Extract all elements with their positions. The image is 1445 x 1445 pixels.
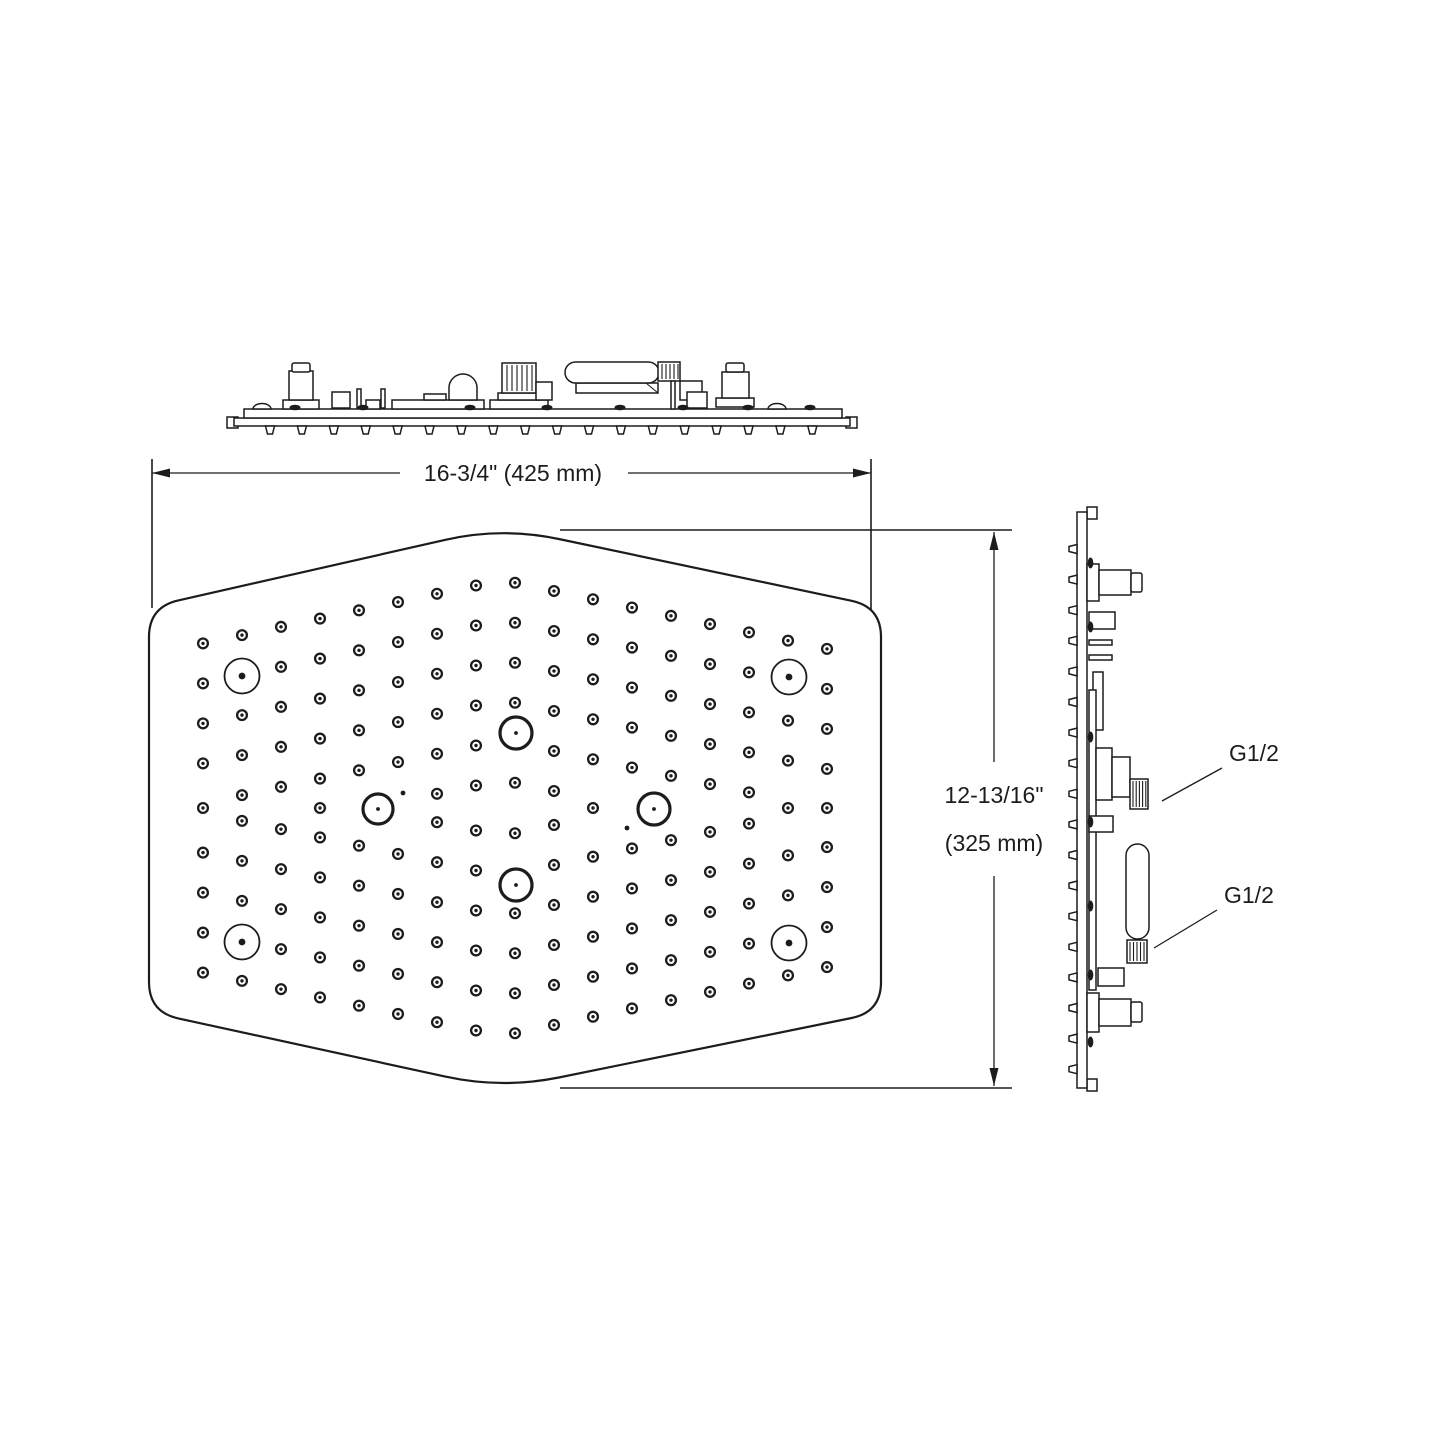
right-cylinder-cap [726, 363, 744, 372]
left-cylinder-flange [283, 400, 319, 409]
side-view-right [1069, 507, 1149, 1091]
plate-end-tab-top [1087, 507, 1097, 519]
small-block-5 [687, 392, 707, 408]
dome-component [449, 374, 477, 400]
nozzle-ticks-column [1069, 545, 1077, 1074]
g12-callout-upper: G1/2 [1162, 740, 1279, 801]
base-plate-deck [244, 409, 842, 418]
panel-outline [149, 533, 881, 1083]
top-cylinder-cap [1131, 573, 1142, 592]
g12-callout-lower: G1/2 [1154, 882, 1274, 948]
platform-step [424, 394, 446, 400]
top-cylinder-flange [1087, 564, 1099, 601]
left-cylinder-cap [292, 363, 310, 372]
arrowhead-left [152, 469, 170, 478]
inlet-body [1112, 757, 1130, 797]
capsule-housing-profile [1126, 844, 1149, 939]
pin-2 [381, 389, 385, 408]
arrowhead-down [990, 1068, 999, 1086]
leader-line-upper [1162, 768, 1222, 801]
height-dimension-label-line1: 12-13/16" [945, 782, 1044, 808]
capsule-housing [565, 362, 659, 383]
small-block-1 [332, 392, 350, 408]
small-block-3 [536, 382, 552, 400]
plan-view [149, 533, 881, 1083]
mount-bump-right [768, 404, 786, 409]
center-pedestal [490, 400, 548, 409]
threaded-inlet-2-top-view [658, 362, 680, 381]
profile-fin-2 [1089, 655, 1112, 660]
profile-fin-1 [1089, 640, 1112, 645]
profile-block-3 [1098, 968, 1124, 986]
g12-label-lower: G1/2 [1224, 882, 1274, 908]
leader-line-lower [1154, 910, 1217, 948]
right-cylinder-body [722, 372, 749, 398]
nozzle-ticks-row [266, 426, 817, 434]
left-cylinder-body [289, 371, 313, 400]
bottom-cylinder-cap [1131, 1002, 1142, 1022]
height-dimension-label-line2: (325 mm) [945, 830, 1043, 856]
width-dimension-label: 16-3/4" (425 mm) [424, 460, 602, 486]
arrowhead-up [990, 532, 999, 550]
center-collar [498, 393, 540, 400]
technical-drawing-sheet: 16-3/4" (425 mm) 12-13/16" [0, 0, 1445, 1445]
bracket-under-capsule [576, 383, 658, 393]
inlet-collar [1096, 748, 1112, 800]
top-cylinder-body [1099, 570, 1131, 595]
bottom-cylinder-body [1099, 999, 1131, 1026]
arrowhead-right [853, 469, 871, 478]
g12-label-upper: G1/2 [1229, 740, 1279, 766]
side-view-top [227, 362, 857, 434]
mount-bump-left [253, 404, 271, 409]
plate-end-tab-bottom [1087, 1079, 1097, 1091]
base-plate-profile [1077, 512, 1087, 1088]
pin-3 [671, 381, 675, 409]
showerhead-dimension-diagram: 16-3/4" (425 mm) 12-13/16" [0, 0, 1445, 1445]
bottom-cylinder-flange [1087, 993, 1099, 1032]
base-plate-lip [234, 418, 850, 426]
